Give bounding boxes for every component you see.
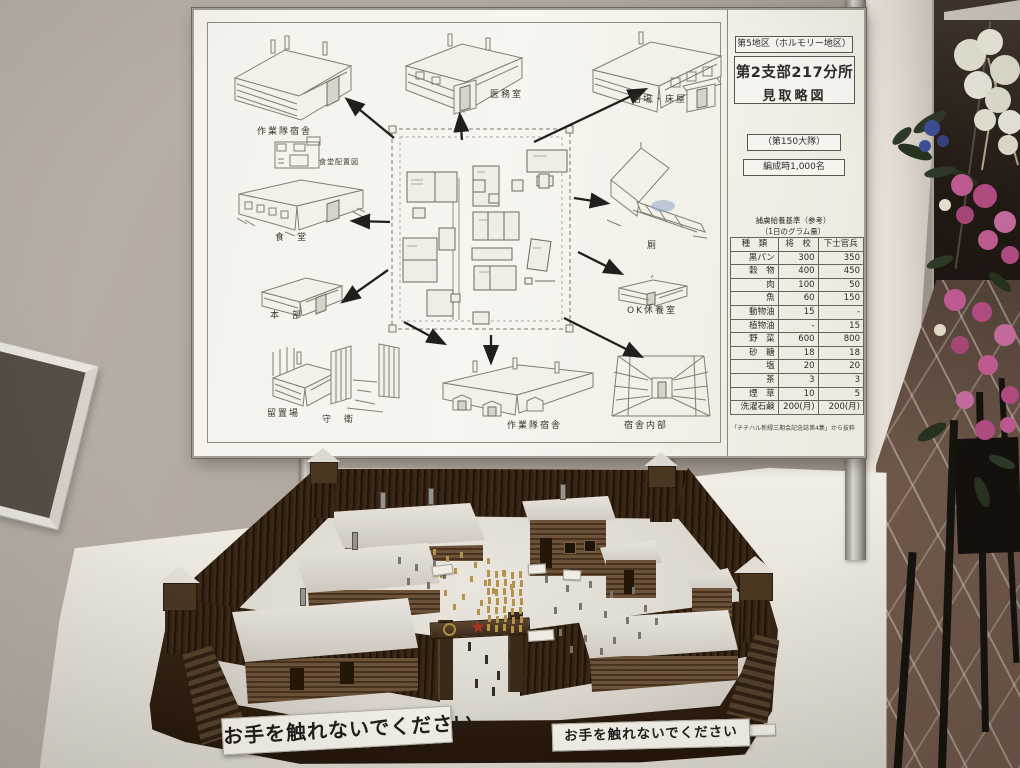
watchtower (158, 566, 200, 654)
enlisted-cell: 800 (818, 333, 863, 347)
tower-roof (734, 556, 776, 573)
item-cell: 茶 (731, 373, 779, 387)
tower-roof (644, 452, 678, 466)
officer-cell: - (778, 319, 818, 333)
item-cell: 洗濯石鹸 (731, 401, 779, 415)
officer-cell: 15 (778, 305, 818, 319)
enlisted-cell: 150 (818, 292, 863, 306)
enlisted-cell: 200(月) (818, 401, 863, 415)
cabin-annex-wall (606, 560, 656, 598)
ration-row: 野 菜600800 (731, 333, 864, 347)
item-cell: 煙 草 (731, 387, 779, 401)
ration-row: 茶33 (731, 373, 864, 387)
prisoner-figures-formation (487, 570, 490, 577)
prisoner-figures-scattered (433, 549, 436, 555)
ration-row: 洗濯石鹸200(月)200(月) (731, 401, 864, 415)
barracks-door (290, 668, 304, 690)
item-cell: 野 菜 (731, 333, 779, 347)
gate-gold-emblem (443, 623, 456, 636)
ration-row: 植物油-15 (731, 319, 864, 333)
flower-arrangement (870, 0, 1020, 560)
ration-header-row: 種 類 将 校 下士官兵 (731, 238, 864, 252)
annex-door (624, 570, 634, 594)
enlisted-cell: - (818, 305, 863, 319)
tower-legs (312, 483, 334, 518)
item-cell: 黒パン (731, 251, 779, 265)
tower-roof (306, 448, 340, 462)
officer-cell: 400 (778, 265, 818, 279)
label-ok-rest: OK休養室 (627, 303, 677, 316)
watchtower (734, 556, 776, 642)
officer-cell: 20 (778, 360, 818, 374)
tower-cab (648, 466, 676, 488)
guard-figures-right (545, 576, 548, 583)
ration-table: 種 類 将 校 下士官兵 黒パン300350 穀 物400450 肉10050 … (730, 237, 864, 415)
label-barracks-bottom: 作業隊宿舎 (507, 418, 562, 431)
ration-title-line1: 捕虜給養基準（参考） (731, 215, 855, 226)
ration-row: 肉10050 (731, 278, 864, 292)
officer-cell: 100 (778, 278, 818, 292)
ration-row: 動物油15- (731, 305, 864, 319)
gate-small-sign (528, 629, 555, 642)
ration-table-title: 捕虜給養基準（参考） （1日のグラム量） (731, 215, 855, 237)
label-bathhouse: 浴場・床屋 (632, 92, 687, 105)
officer-cell: 200(月) (778, 401, 818, 415)
label-hq: 本 部 (270, 308, 303, 321)
enlisted-cell: 350 (818, 251, 863, 265)
tower-legs (650, 487, 672, 522)
officer-cell: 3 (778, 373, 818, 387)
ration-row: 黒パン300350 (731, 251, 864, 265)
label-guard: 守 衛 (322, 412, 355, 425)
item-cell: 動物油 (731, 305, 779, 319)
exhibit-photo: 作業隊宿舎 医務室 浴場・床屋 食堂配置図 食 堂 厠 本 部 OK休養室 留置… (0, 0, 1020, 768)
barracks-door (340, 662, 354, 684)
watchtower (644, 452, 678, 522)
do-not-touch-sign-right: お手を触れないでください (552, 718, 751, 751)
figures-near-gate (468, 642, 471, 651)
label-dining: 食 堂 (275, 230, 308, 243)
ration-row: 煙 草105 (731, 387, 864, 401)
tower-legs (165, 610, 193, 654)
chimney (428, 488, 434, 505)
model-placard (528, 563, 547, 574)
tower-cab (163, 583, 197, 611)
tower-roof (158, 566, 200, 583)
label-infirmary: 医務室 (490, 87, 523, 100)
chimney (352, 532, 358, 550)
label-toilet: 厠 (647, 238, 658, 251)
col-enlisted-header: 下士官兵 (818, 238, 863, 252)
chimney (560, 484, 566, 500)
cabin-window (584, 540, 596, 552)
col-item-header: 種 類 (731, 238, 779, 252)
enlisted-cell: 50 (818, 278, 863, 292)
officer-cell: 60 (778, 292, 818, 306)
enlisted-cell: 15 (818, 319, 863, 333)
chimney (380, 492, 386, 509)
enlisted-cell: 5 (818, 387, 863, 401)
item-cell: 穀 物 (731, 265, 779, 279)
picture-frame-corner (0, 335, 98, 530)
board-title: 第2支部217分所 (735, 61, 854, 82)
strength-box: 編成時1,000名 (743, 159, 845, 176)
officer-cell: 18 (778, 346, 818, 360)
item-cell: 塩 (731, 360, 779, 374)
ration-title-line2: （1日のグラム量） (731, 226, 855, 237)
enlisted-cell: 20 (818, 360, 863, 374)
label-dining-layout: 食堂配置図 (319, 157, 359, 167)
model-placard (563, 570, 581, 581)
item-cell: 砂 糖 (731, 346, 779, 360)
ration-footnote: 「チチハル新緑三期会記念誌第4集」から抜粋 (727, 423, 859, 432)
tower-cab (310, 462, 338, 484)
guard-figures-left (398, 557, 401, 564)
enlisted-cell: 18 (818, 346, 863, 360)
district-box: 第5地区（ホルモリー地区） (735, 36, 853, 53)
col-officer-header: 将 校 (778, 238, 818, 252)
officer-cell: 300 (778, 251, 818, 265)
enlisted-cell: 450 (818, 265, 863, 279)
model-placard (748, 724, 776, 737)
ration-row: 穀 物400450 (731, 265, 864, 279)
ration-row: 砂 糖1818 (731, 346, 864, 360)
label-detention: 留置場 (267, 406, 300, 419)
enlisted-cell: 3 (818, 373, 863, 387)
officer-cell: 10 (778, 387, 818, 401)
site-plan-board: 作業隊宿舎 医務室 浴場・床屋 食堂配置図 食 堂 厠 本 部 OK休養室 留置… (192, 8, 866, 458)
cabin-window (564, 542, 576, 554)
battalion-box: （第150大隊） (747, 134, 841, 151)
item-cell: 肉 (731, 278, 779, 292)
tower-cab (739, 573, 773, 601)
title-box: 第2支部217分所 見取略図 (734, 56, 855, 104)
ration-row: 魚60150 (731, 292, 864, 306)
ration-row: 塩2020 (731, 360, 864, 374)
item-cell: 植物油 (731, 319, 779, 333)
board-subtitle: 見取略図 (735, 85, 854, 104)
label-interior: 宿舎内部 (624, 418, 668, 431)
item-cell: 魚 (731, 292, 779, 306)
chimney (300, 588, 306, 606)
label-barracks-top: 作業隊宿舎 (257, 124, 312, 137)
watchtower (306, 448, 340, 518)
officer-cell: 600 (778, 333, 818, 347)
